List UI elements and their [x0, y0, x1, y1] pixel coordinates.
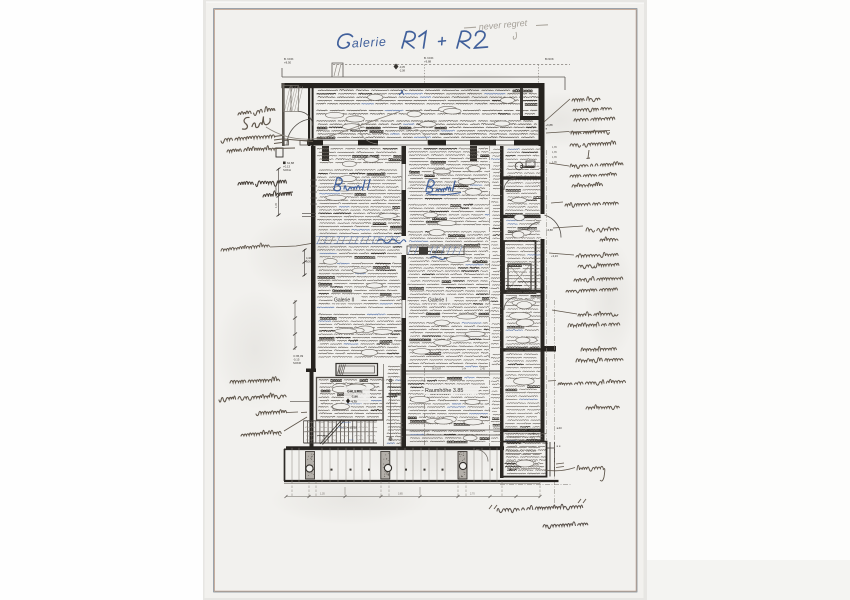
- svg-text:2,45: 2,45: [480, 368, 485, 371]
- svg-text:Raumhöhe 3.85: Raumhöhe 3.85: [425, 388, 463, 394]
- svg-text:14×: 14×: [462, 368, 467, 371]
- svg-text:Galerie II: Galerie II: [334, 298, 354, 304]
- svg-text:90 DUR: 90 DUR: [432, 368, 441, 371]
- svg-text:B.NOK: B.NOK: [545, 57, 554, 61]
- svg-text:GALERIE: GALERIE: [347, 390, 363, 394]
- svg-text:1,35: 1,35: [320, 493, 325, 496]
- svg-text:⊕40: ⊕40: [557, 426, 563, 430]
- svg-text:3,85: 3,85: [398, 493, 403, 496]
- svg-text:+9,88: +9,88: [424, 60, 432, 64]
- svg-text:1,35: 1,35: [274, 202, 278, 208]
- svg-text:alerie: alerie: [351, 35, 386, 51]
- svg-text:Galerie I: Galerie I: [428, 298, 447, 304]
- svg-text:SOKR: SOKR: [293, 361, 301, 365]
- svg-text:1,35: 1,35: [552, 151, 557, 154]
- svg-text:-2,08: -2,08: [399, 68, 405, 72]
- svg-text:1,35: 1,35: [552, 146, 557, 149]
- svg-text:4,40: 4,40: [306, 256, 312, 260]
- svg-text:+6,88: +6,88: [546, 228, 553, 232]
- svg-text:6/20: 6/20: [306, 260, 312, 264]
- svg-text:SOKH: SOKH: [283, 168, 291, 172]
- svg-text:+8,50: +8,50: [284, 61, 292, 65]
- svg-text:-4,75: -4,75: [350, 399, 357, 403]
- svg-text:-1,96: -1,96: [351, 395, 358, 399]
- svg-text:-0,35: -0,35: [399, 65, 405, 69]
- svg-text:+3,23: +3,23: [551, 254, 558, 258]
- svg-text:1,35: 1,35: [552, 156, 557, 159]
- svg-text:4,665: 4,665: [274, 186, 278, 193]
- svg-text:19,5× 15/28: 19,5× 15/28: [341, 426, 357, 430]
- svg-text:≡ ≡: ≡ ≡: [557, 445, 561, 448]
- svg-text:2,70: 2,70: [470, 493, 475, 496]
